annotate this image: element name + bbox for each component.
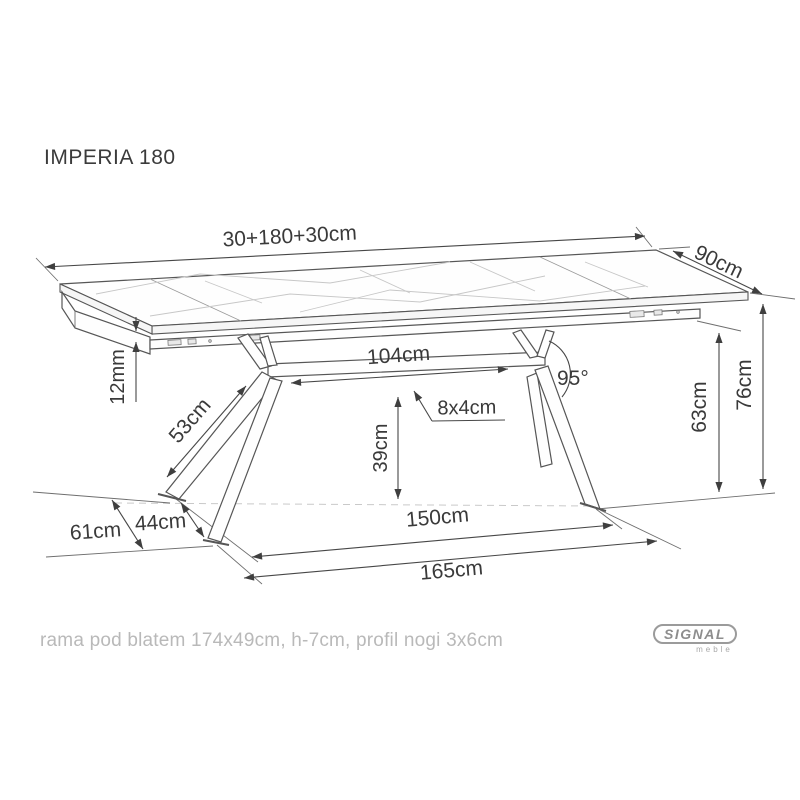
brand-logo-text: SIGNAL xyxy=(653,624,737,644)
dim-label-leg-angle: 95° xyxy=(557,367,589,390)
spec-caption: rama pod blatem 174x49cm, h-7cm, profil … xyxy=(40,630,503,652)
dim-label-beam-clearance: 39cm xyxy=(370,424,392,473)
dim-label-top-thickness: 12mm xyxy=(107,349,129,405)
brand-logo: SIGNAL meble xyxy=(653,624,737,654)
product-dimension-sheet: IMPERIA 180 xyxy=(0,0,800,800)
dim-label-feet-depth-inner: 44cm xyxy=(134,509,187,536)
dim-line-span-inner xyxy=(252,525,613,557)
dim-label-feet-depth-outer: 61cm xyxy=(69,518,122,545)
dim-label-frame-clearance: 63cm xyxy=(688,381,711,432)
floor-dashed-line xyxy=(115,503,590,506)
brand-logo-subtext: meble xyxy=(653,645,733,654)
dim-label-beam-length: 104cm xyxy=(366,342,430,369)
dim-label-top-length: 30+180+30cm xyxy=(222,222,357,252)
leader-beam-profile xyxy=(414,391,432,421)
extension-lines-bottom xyxy=(33,492,775,584)
dim-label-beam-profile: 8x4cm xyxy=(437,396,496,419)
dim-label-span-outer: 165cm xyxy=(419,556,484,584)
underline-beam-profile xyxy=(432,420,505,421)
dim-label-table-height: 76cm xyxy=(733,359,756,410)
right-upper-arm-2 xyxy=(537,330,554,358)
dim-label-span-inner: 150cm xyxy=(405,503,470,531)
table-dimension-drawing: 30+180+30cm 90cm 12mm 53cm 104cm 8x4cm 3… xyxy=(0,0,800,800)
